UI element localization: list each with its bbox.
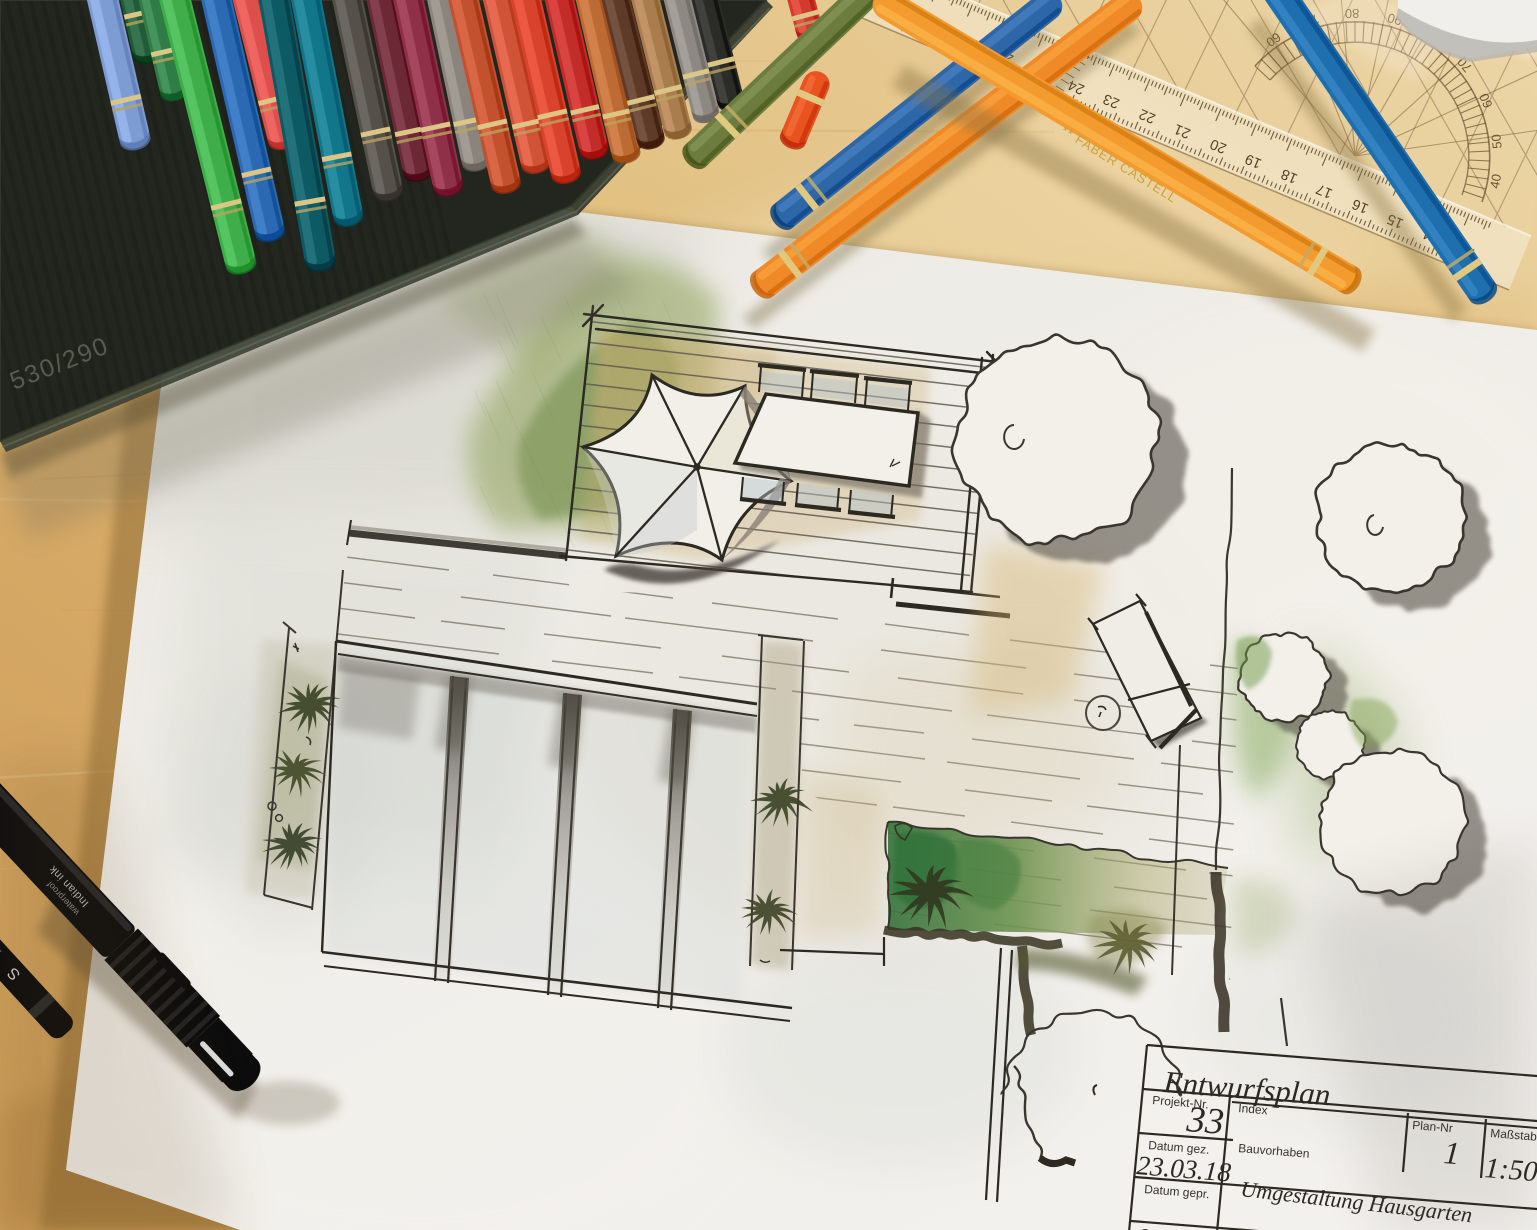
svg-text:33: 33 (1184, 1099, 1225, 1143)
svg-text:40: 40 (1487, 173, 1504, 190)
